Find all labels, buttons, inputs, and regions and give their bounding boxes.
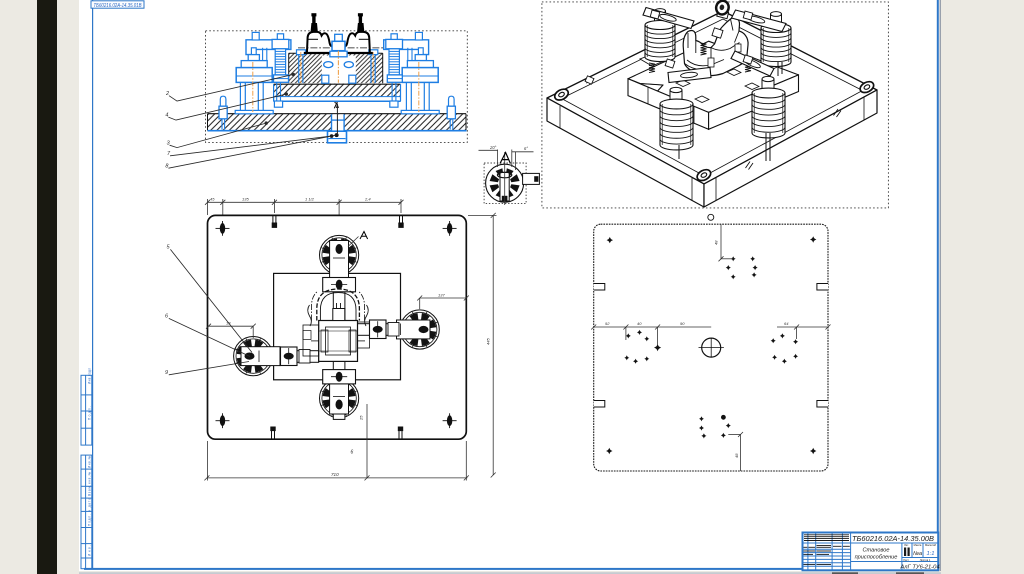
svg-text:710: 710 [331,472,339,477]
svg-text:Масштаб: Масштаб [925,543,937,547]
svg-text:Лист: Лист [903,558,909,562]
svg-text:445: 445 [486,338,491,345]
svg-text:4: 4 [165,113,168,119]
svg-text:1:1: 1:1 [926,551,934,557]
svg-text:Подп. и дата: Подп. и дата [88,498,92,526]
svg-text:45: 45 [210,197,215,202]
svg-text:Масса: Масса [914,543,922,547]
svg-text:6: 6 [351,450,354,456]
svg-text:6°: 6° [524,146,528,151]
svg-text:20°: 20° [489,145,497,150]
svg-text:25: 25 [359,415,364,421]
svg-text:№а: №а [913,551,922,557]
svg-text:Инв.подл: Инв.подл [88,368,92,384]
svg-text:2,4: 2,4 [364,197,371,202]
svg-text:ТБ60216.02А-14.35.01В: ТБ60216.02А-14.35.01В [94,3,142,9]
svg-text:2: 2 [165,91,169,97]
svg-text:приспособление: приспособление [855,555,898,561]
svg-text:135: 135 [242,197,249,202]
svg-text:137: 137 [438,292,445,297]
svg-text:Листов 1: Листов 1 [920,558,931,562]
svg-text:Взам.инв.№: Взам.инв.№ [88,471,92,496]
svg-text:18: 18 [226,320,231,325]
svg-text:1 1/2: 1 1/2 [305,197,315,202]
svg-text:64: 64 [784,321,789,326]
svg-text:92: 92 [605,321,610,326]
svg-text:9: 9 [165,370,168,376]
svg-text:ТБ60216.02А-14.35.00В: ТБ60216.02А-14.35.00В [852,536,934,543]
svg-text:Инв.№: Инв.№ [88,455,92,468]
svg-text:48: 48 [714,240,719,245]
svg-text:АлГ ТУ6-21-04: АлГ ТУ6-21-04 [899,565,939,571]
svg-text:40: 40 [637,321,642,326]
svg-text:90: 90 [680,321,685,326]
svg-text:Становое: Становое [863,548,890,554]
svg-text:48: 48 [734,453,739,458]
svg-text:Лит.: Лит. [904,543,909,547]
